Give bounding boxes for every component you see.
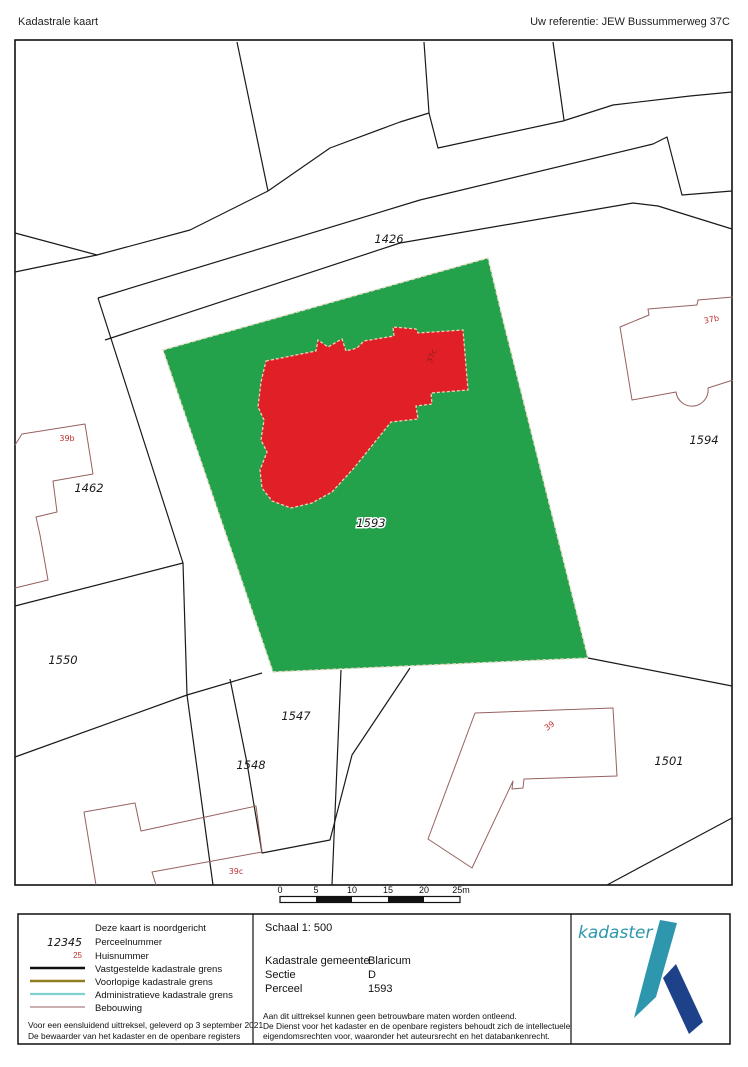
house-label-39: 39 [543,719,557,732]
reference-text: Uw referentie: JEW Bussummerweg 37C [530,16,730,28]
footer-right-line3: eigendomsrechten voor, waaronder het aut… [263,1031,550,1041]
parcel-label-1593: 1593 [356,516,385,530]
scale-bar: 0 5 10 15 20 25m [277,885,469,903]
parcel-label-1426: 1426 [374,232,403,246]
legend-voorlopig-label: Voorlopige kadastrale grens [95,977,213,988]
scale-tick-0: 0 [277,885,282,895]
gemeente-label: Kadastrale gemeente [265,955,370,967]
scale-bar-segment [388,897,424,903]
parcel-label-1550: 1550 [48,653,77,667]
scale-bar-track [280,897,460,903]
parcel-label-1501: 1501 [654,754,683,768]
perceel-label: Perceel [265,983,302,995]
gemeente-value: Blaricum [368,955,411,967]
scale-tick-25m: 25m [452,885,470,895]
scale-label: Schaal 1: 500 [265,922,332,934]
legend-perceel-sample: 12345 [47,936,82,949]
page-title: Kadastrale kaart [18,16,98,28]
parcel-1593-area [163,258,588,672]
legend-perceel-label: Perceelnummer [95,937,162,948]
legend-vastgesteld-label: Vastgestelde kadastrale grens [95,964,222,975]
cadastral-map-page: Kadastrale kaart Uw referentie: JEW Buss… [0,0,748,1067]
legend-north-note: Deze kaart is noordgericht [95,923,206,934]
parcel-label-1547: 1547 [281,709,311,723]
footer-left-line1: Voor een eensluidend uittreksel, gelever… [28,1020,263,1030]
kadaster-logo-text: kadaster [578,923,653,943]
parcel-label-1462: 1462 [74,481,103,495]
legend-huis-label: Huisnummer [95,951,149,962]
sectie-label: Sectie [265,969,296,981]
scale-bar-segment [316,897,352,903]
scale-tick-10: 10 [347,885,357,895]
legend-huis-sample: 25 [73,951,82,960]
parcel-label-1594: 1594 [689,433,718,447]
scale-tick-5: 5 [313,885,318,895]
house-label-39b: 39b [59,434,74,443]
legend-bebouwing-label: Bebouwing [95,1003,142,1014]
building-39b [15,424,93,588]
sectie-value: D [368,969,376,981]
building-39 [428,708,617,868]
legend-administratief-label: Administratieve kadastrale grens [95,990,233,1001]
scale-tick-15: 15 [383,885,393,895]
info-box: Deze kaart is noordgericht 12345 Perceel… [18,914,730,1044]
house-label-37b: 37b [703,314,720,326]
footer-left-line2: De bewaarder van het kadaster en de open… [28,1031,240,1041]
footer-right-line1: Aan dit uittreksel kunnen geen betrouwba… [263,1011,517,1021]
house-label-39c: 39c [229,867,244,876]
perceel-value: 1593 [368,983,392,995]
parcel-label-1548: 1548 [236,758,265,772]
scale-tick-20: 20 [419,885,429,895]
footer-right-line2: De Dienst voor het kadaster en de openba… [263,1021,571,1031]
